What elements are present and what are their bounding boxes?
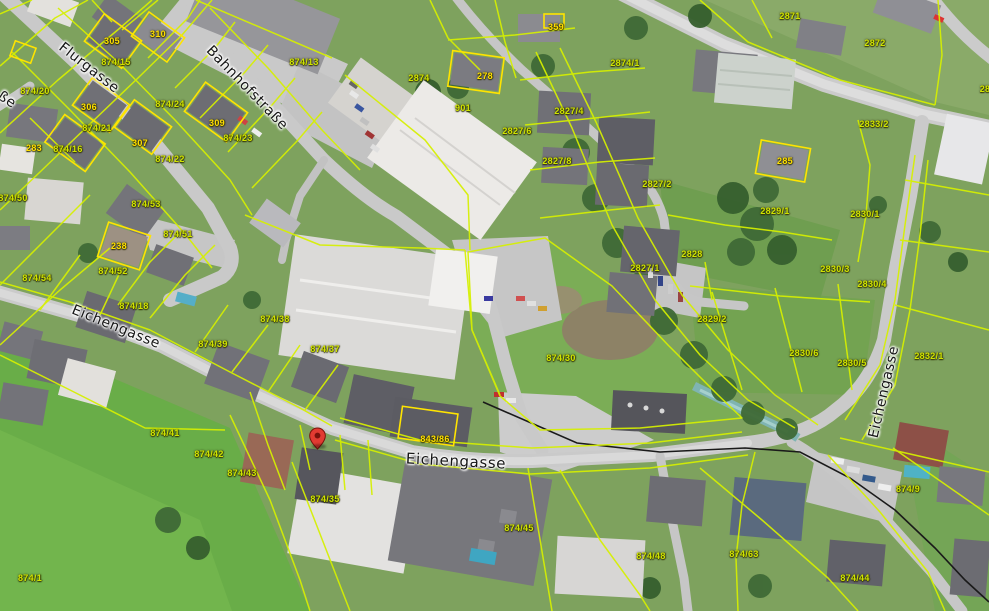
labels-layer: 874/20874/15874/13874/24874/21874/16874/… (0, 0, 989, 611)
parcel-label: 874/42 (194, 449, 223, 459)
parcel-label: 874/53 (131, 199, 160, 209)
parcel-label: 2830/5 (837, 358, 866, 368)
building-label: 359 (548, 22, 564, 32)
building-label: 283 (26, 143, 42, 153)
parcel-label: 2874 (408, 73, 429, 83)
parcel-label: 2829/2 (697, 314, 726, 324)
building-label: 285 (777, 156, 793, 166)
parcel-label: 2830/4 (857, 279, 886, 289)
parcel-label: 874/21 (82, 123, 111, 133)
building-label: 310 (150, 29, 166, 39)
parcel-label: 2832/1 (914, 351, 943, 361)
parcel-label: 2830/1 (850, 209, 879, 219)
parcel-label: 874/22 (155, 154, 184, 164)
parcel-label: 2872 (864, 38, 885, 48)
parcel-label: 874/43 (227, 468, 256, 478)
pin-shadow-icon (312, 444, 326, 449)
parcel-label: 874/1 (18, 573, 42, 583)
parcel-label: 874/35 (310, 494, 339, 504)
parcel-label: 2830/3 (820, 264, 849, 274)
parcel-label: 874/63 (729, 549, 758, 559)
parcel-label: 874/51 (163, 229, 192, 239)
parcel-label: 2828 (681, 249, 702, 259)
parcel-label: 2827/1 (630, 263, 659, 273)
building-label: 307 (132, 138, 148, 148)
parcel-label: 874/54 (22, 273, 51, 283)
parcel-label: 874/16 (53, 144, 82, 154)
location-pin[interactable] (309, 427, 326, 450)
parcel-label: 874/44 (840, 573, 869, 583)
street-label: Eichengasse (866, 344, 903, 439)
parcel-label: 874/24 (155, 99, 184, 109)
parcel-label: 874/9 (896, 484, 920, 494)
map-viewport[interactable]: 874/20874/15874/13874/24874/21874/16874/… (0, 0, 989, 611)
parcel-label: 874/48 (636, 551, 665, 561)
parcel-label: 2829/1 (760, 206, 789, 216)
parcel-label: 2833/2 (859, 119, 888, 129)
parcel-label: 874/45 (504, 523, 533, 533)
building-label: 306 (81, 102, 97, 112)
parcel-label: 874/38 (260, 314, 289, 324)
parcel-label: 874/15 (101, 57, 130, 67)
parcel-label: 2830/6 (789, 348, 818, 358)
parcel-label: 874/13 (289, 57, 318, 67)
parcel-label: 28 (980, 84, 989, 94)
parcel-label: 874/41 (150, 428, 179, 438)
parcel-label: 874/39 (198, 339, 227, 349)
parcel-label: 2827/4 (554, 106, 583, 116)
building-label: 238 (111, 241, 127, 251)
parcel-label: 2827/6 (502, 126, 531, 136)
parcel-label: 874/37 (310, 344, 339, 354)
parcel-label: 2874/1 (610, 58, 639, 68)
building-label: 309 (209, 118, 225, 128)
parcel-label: 2871 (779, 11, 800, 21)
parcel-label: 874/50 (0, 193, 28, 203)
parcel-label: 2827/8 (542, 156, 571, 166)
street-label: Flurgasse (56, 39, 123, 96)
parcel-label: 2827/2 (642, 179, 671, 189)
building-label: 278 (477, 71, 493, 81)
street-label: Eichengasse (405, 449, 506, 472)
parcel-label: 874/52 (98, 266, 127, 276)
parcel-label: 874/23 (223, 133, 252, 143)
building-label: 843/86 (420, 434, 449, 444)
parcel-label: 874/30 (546, 353, 575, 363)
parcel-label: 874/18 (119, 301, 148, 311)
building-label: 305 (104, 36, 120, 46)
parcel-label: 874/20 (20, 86, 49, 96)
parcel-label: 901 (455, 103, 471, 113)
street-label: ße (0, 88, 19, 112)
